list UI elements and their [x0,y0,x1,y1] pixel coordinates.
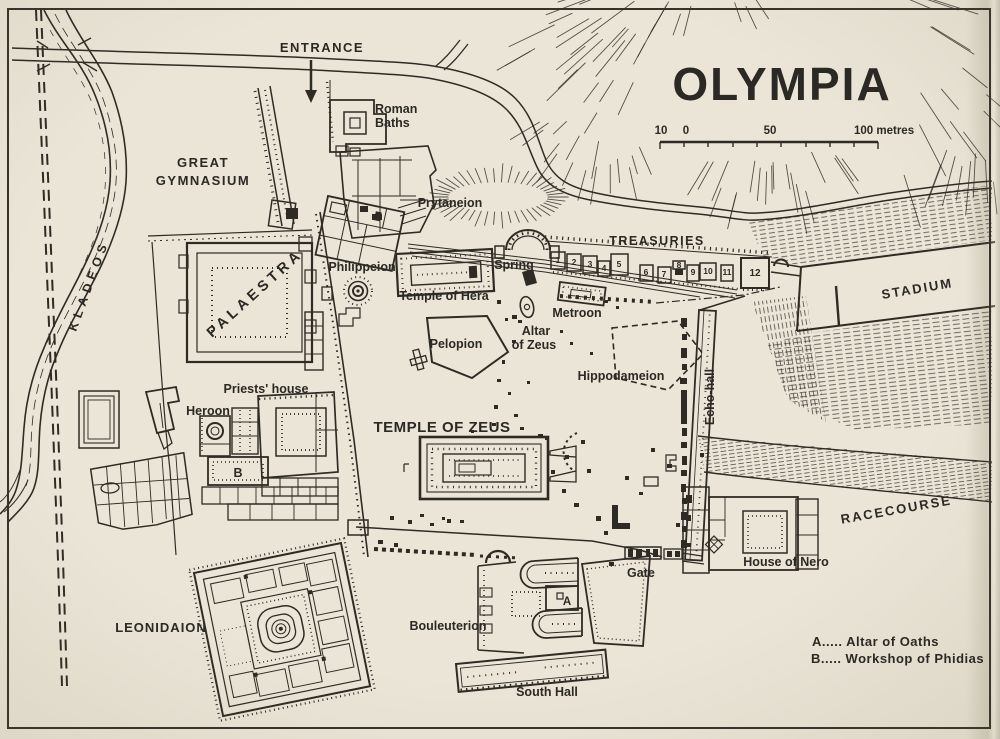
treasury-8: 8 [677,260,682,270]
treasury-3: 3 [588,259,593,269]
label-hippodameion: Hippodameion [578,369,665,383]
label-temple-of-hera: Temple of Hera [399,289,489,303]
label-treasuries: TREASURIES [609,234,705,248]
label-entrance: ENTRANCE [280,40,364,55]
label-altar-of-zeus-1: Altar [522,324,551,338]
treasury-6: 6 [644,267,649,277]
label-pelopion: Pelopion [430,337,483,351]
scale-0: 0 [683,125,689,137]
label-gate: Gate [627,566,655,580]
scale-50: 50 [764,125,777,137]
label-great-gymnasium-1: GREAT [177,155,229,170]
legend-altar-of-oaths: A..... Altar of Oaths [812,634,939,649]
label-leonidaion: LEONIDAION [115,620,207,635]
treasury-4: 4 [602,263,607,273]
label-temple-of-zeus: TEMPLE OF ZEUS [373,419,510,436]
treasury-1: 1 [556,255,561,265]
label-altar-of-zeus-2: of Zeus [512,338,556,352]
label-heroon: Heroon [186,404,230,418]
label-bouleuterion: Bouleuterion [409,619,486,633]
label-spring: Spring [494,258,534,272]
treasury-11: 11 [723,267,732,277]
label-house-of-nero: House of Nero [743,555,829,569]
label-great-gymnasium-2: GYMNASIUM [156,173,250,188]
label-roman-baths-1: Roman [375,102,417,116]
label-prytaneion: Prytaneion [418,196,483,210]
label-roman-baths-2: Baths [375,116,410,130]
marker-b-on-map: B [233,466,242,480]
label-south-hall: South Hall [516,685,578,699]
scale-100-metres: 100 metres [854,125,914,137]
treasury-12: 12 [749,268,761,279]
treasury-9: 9 [691,267,696,277]
olympia-map: OLYMPIA 10 0 50 100 metres ENTRANCE Roma… [0,0,1000,739]
legend-workshop-of-phidias: B..... Workshop of Phidias [811,651,984,666]
label-priests-house: Priests' house [224,382,309,396]
scale-10: 10 [655,125,668,137]
olympia-map-page: OLYMPIA 10 0 50 100 metres ENTRANCE Roma… [0,0,1000,739]
map-title: OLYMPIA [672,58,891,110]
treasury-2: 2 [572,257,577,267]
treasury-7: 7 [662,269,667,279]
label-philippeion: Philippeion [328,260,395,274]
treasury-5: 5 [617,259,622,269]
treasury-10: 10 [703,266,713,276]
marker-a-on-map: A [563,596,571,608]
label-echo-hall: Echo-hall [703,369,717,425]
label-metroon: Metroon [552,306,601,320]
